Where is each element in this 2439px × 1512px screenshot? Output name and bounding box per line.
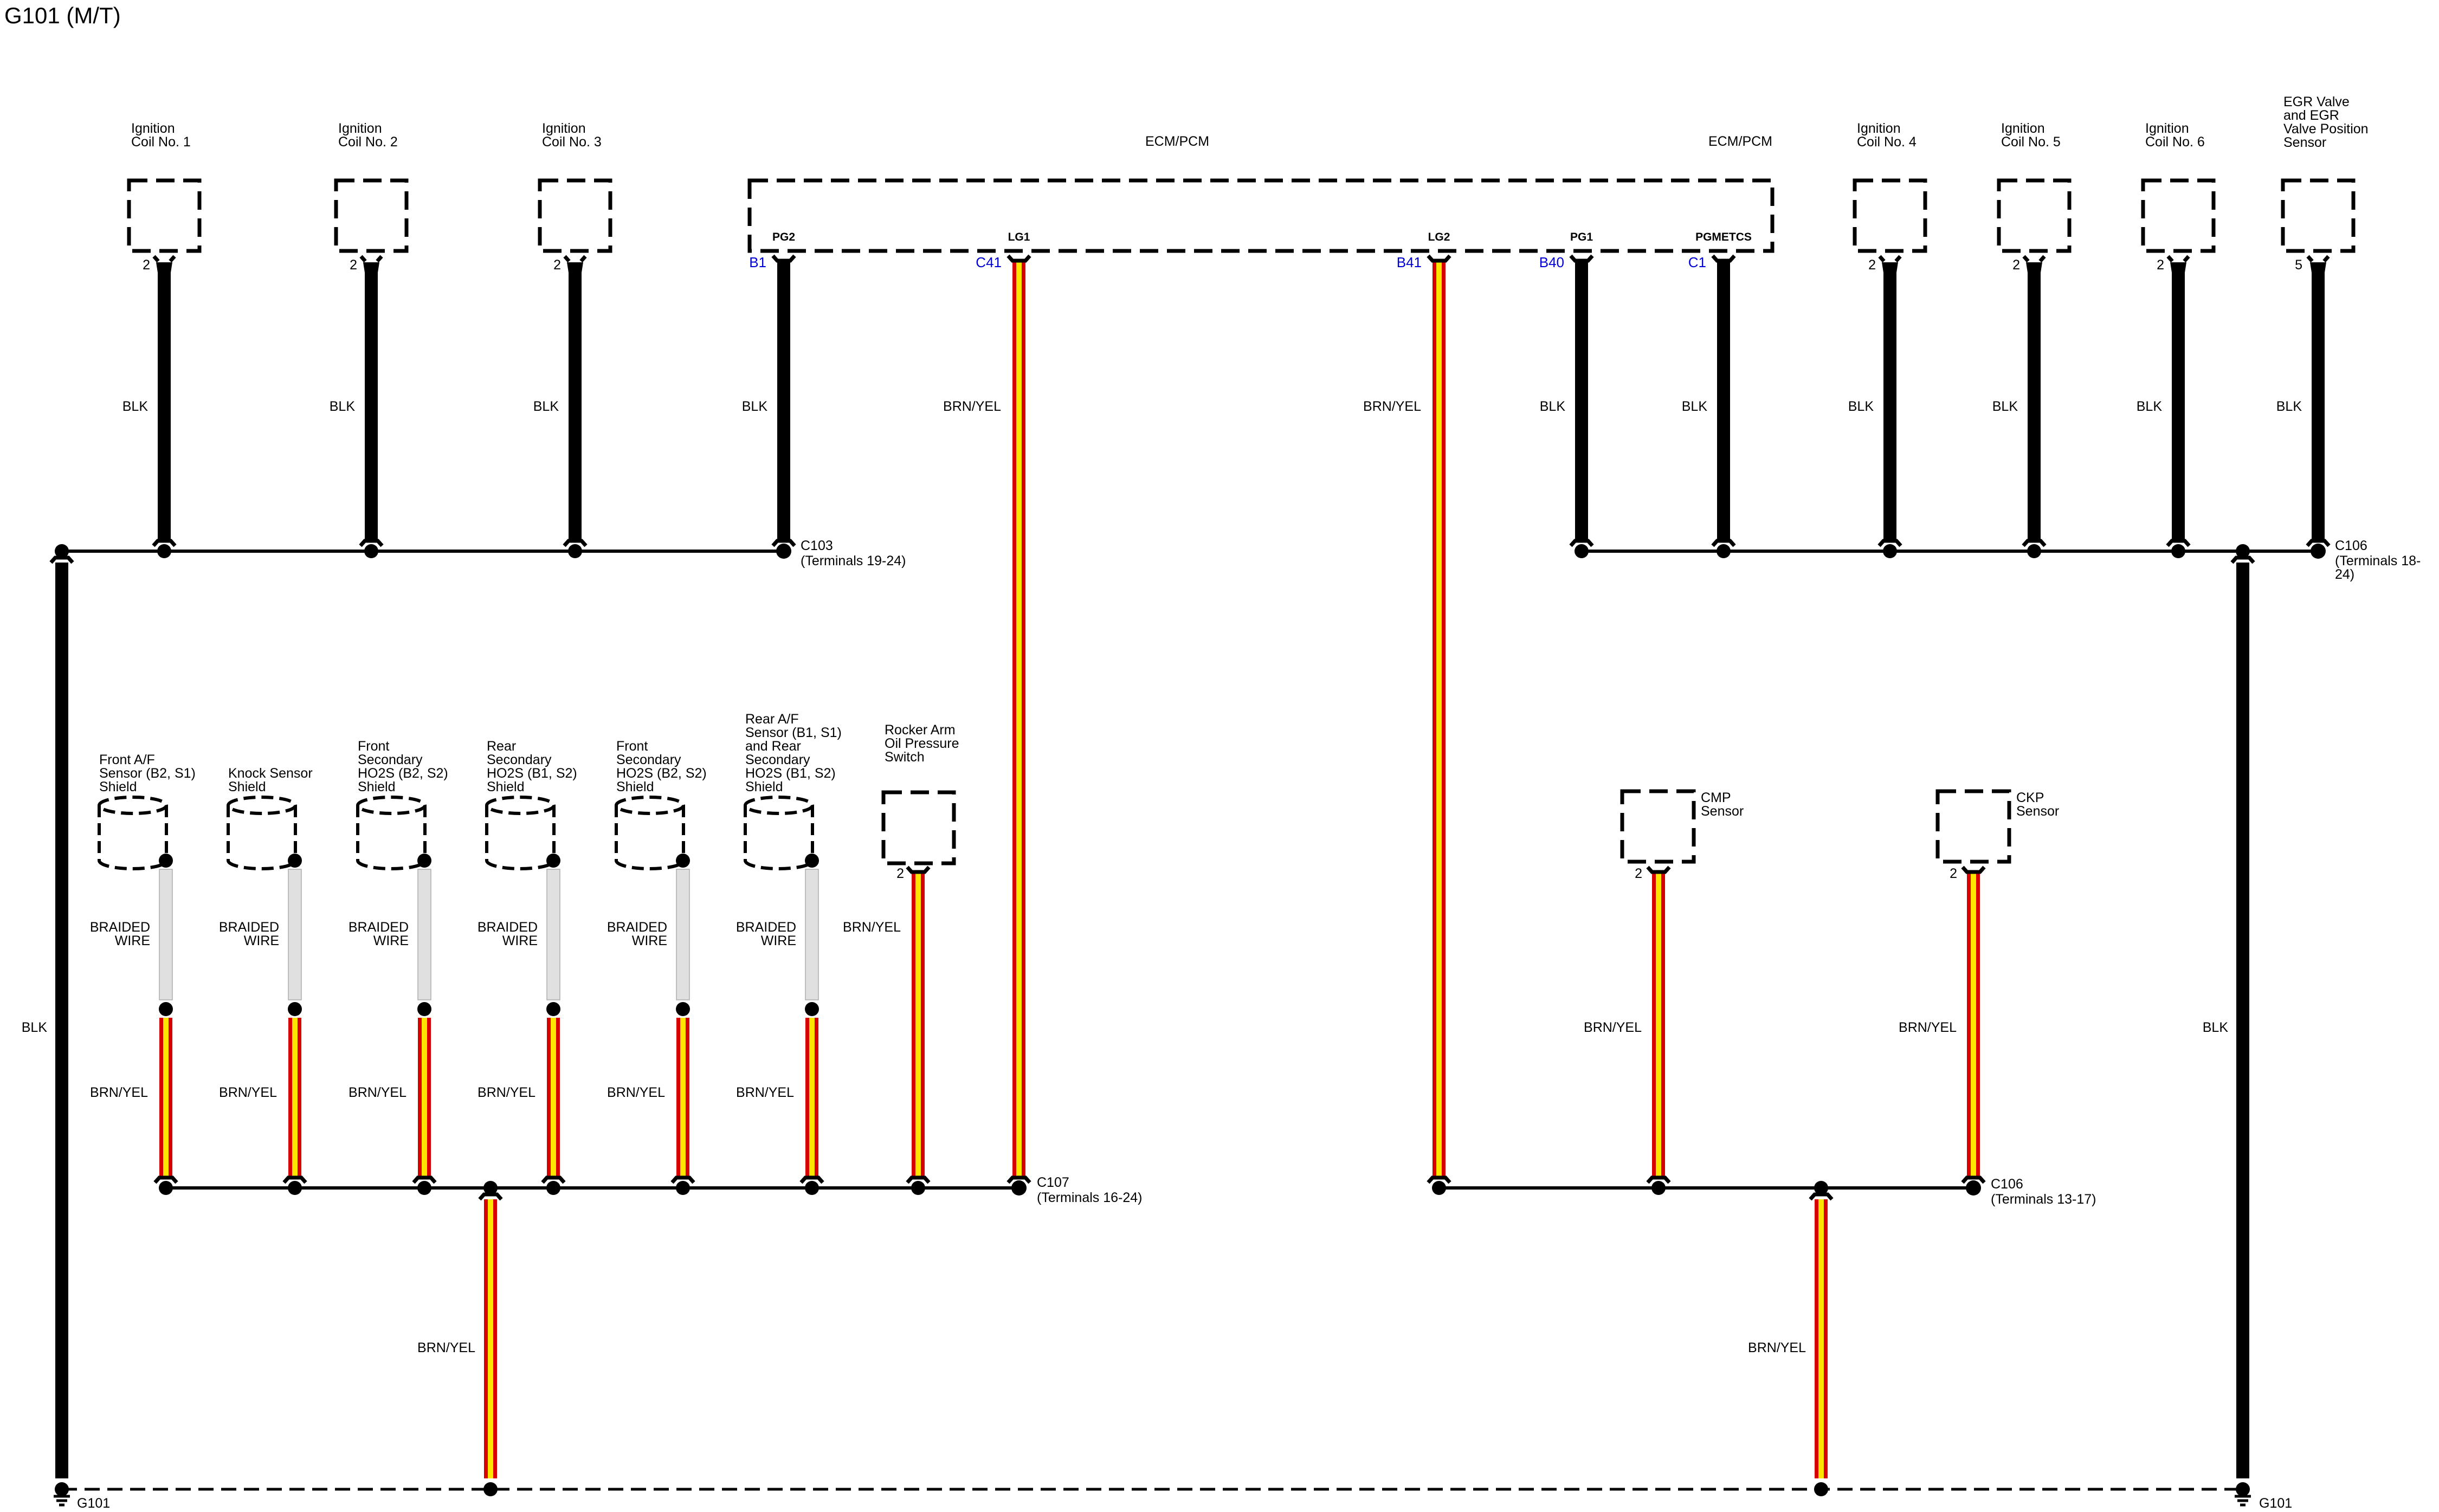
ecm-pin-pg1: PG1 [1549,231,1614,243]
connector-c106-bottom-terminals: (Terminals 13-17) [1991,1193,2096,1206]
coil6-pin-number: 2 [2143,259,2164,272]
ground-symbol-right-icon [2235,1496,2251,1505]
shield1-wire-color: BRN/YEL [78,1086,148,1100]
pgmetcs-blk-wire [1717,261,1730,539]
shield-4-label: Rear Secondary HO2S (B1, S2) Shield [487,740,577,794]
shield6-brnyel-wire [805,1018,818,1177]
shield2-wire-color: BRN/YEL [207,1086,277,1100]
egr-valve-label: EGR Valve and EGR Valve Position Sensor [2283,95,2369,150]
braided-wire-6 [805,869,818,1000]
lg1-brnyel-wire [1012,261,1025,1177]
coil1-plug-icon [154,256,175,273]
brnyel-wires [159,261,1980,1478]
ckp-sensor-label: CKP Sensor [2016,791,2059,818]
ignition-coil-4-label: Ignition Coil No. 4 [1857,122,1917,149]
ignition-coil-5-box [1999,180,2069,251]
ground-symbols [54,1496,2251,1505]
ecm-pcm-label-right: ECM/PCM [1669,135,1772,148]
coil4-pin-number: 2 [1854,259,1876,272]
cmp-sensor-box [1622,791,1694,862]
shield3-wire-color: BRN/YEL [336,1086,406,1100]
terminal-b1: B1 [696,255,766,269]
connector-c103-name: C103 [801,539,833,553]
shield1-brnyel-wire [159,1018,172,1177]
wiring-diagram-g101: G101 (M/T) Ignition Coil No. 1 Ignition … [0,0,2439,1512]
egr-wire-color: BLK [2264,400,2302,413]
coil2-wire-color: BLK [317,400,355,413]
coil5-wire-color: BLK [1980,400,2018,413]
coil3-plug-icon [565,256,585,273]
ckp-wire-color: BRN/YEL [1886,1021,1957,1035]
connector-c103-terminals: (Terminals 19-24) [801,554,906,568]
terminal-c41: C41 [931,255,1002,269]
coil4-wire-color: BLK [1836,400,1874,413]
braided-wire-2-label: BRAIDED WIRE [209,921,279,948]
coil6-wire-color: BLK [2124,400,2162,413]
ignition-coil-5-label: Ignition Coil No. 5 [2001,122,2061,149]
ecm-pin-pg2: PG2 [751,231,816,243]
left-drop-brnyel-wire [484,1199,497,1478]
coil5-pin-number: 2 [1998,259,2020,272]
braided-wire-1-label: BRAIDED WIRE [80,921,150,948]
ignition-coil-2-label: Ignition Coil No. 2 [338,122,398,149]
cmp-wire-color: BRN/YEL [1571,1021,1642,1035]
ckp-sensor-box [1938,791,2009,862]
pg2-blk-wire [777,261,790,539]
braided-wire-3 [418,869,431,1000]
braided-wire-1 [159,869,172,1000]
shield-cylinder-5 [616,797,683,869]
ground-label-right: G101 [2259,1497,2292,1510]
coil2-blk-wire [365,272,378,539]
shield-cylinder-6 [745,797,812,869]
shield-1-label: Front A/F Sensor (B2, S1) Shield [99,753,196,794]
braided-wire-4-label: BRAIDED WIRE [467,921,538,948]
ignition-coil-1-label: Ignition Coil No. 1 [131,122,191,149]
rocker-brnyel-wire [912,873,925,1177]
coil6-plug-icon [2168,256,2189,273]
component-boxes [129,180,2353,863]
shield5-brnyel-wire [676,1018,689,1177]
lg1-wire-color: BRN/YEL [931,400,1001,413]
shield6-wire-color: BRN/YEL [724,1086,794,1100]
egr-plug-icon [2308,256,2328,273]
lg2-brnyel-wire [1433,261,1446,1177]
pg1-wire-color: BLK [1527,400,1565,413]
rocker-wire-color: BRN/YEL [830,921,901,934]
coil5-plug-icon [2024,256,2044,273]
cmp-pin-number: 2 [1621,867,1642,881]
connector-c107-name: C107 [1037,1176,1069,1190]
coil3-wire-color: BLK [521,400,559,413]
connector-c106-bottom-name: C106 [1991,1178,2023,1191]
shield-cylinder-2 [228,797,295,869]
coil4-plug-icon [1880,256,1900,273]
cmp-sensor-label: CMP Sensor [1701,791,1744,818]
egr-valve-box [2283,180,2353,251]
shield-cylinder-3 [358,797,425,869]
coil1-wire-color: BLK [110,400,148,413]
coil2-pin-number: 2 [335,259,357,272]
egr-pin-number: 5 [2281,259,2302,272]
rocker-arm-label: Rocker Arm Oil Pressure Switch [885,723,959,764]
terminal-b40: B40 [1494,255,1564,269]
right-ground-blk-wire [2236,563,2249,1478]
coil5-blk-wire [2028,272,2041,539]
coil3-blk-wire [569,272,582,539]
coil2-plug-icon [361,256,382,273]
right-ground-wire-color: BLK [2190,1021,2228,1035]
right-drop-brnyel-wire [1815,1199,1828,1478]
shield-3-label: Front Secondary HO2S (B2, S2) Shield [358,740,448,794]
shield5-wire-color: BRN/YEL [595,1086,665,1100]
ecm-pin-pgmetcs: PGMETCS [1691,231,1756,243]
connector-c106-top-name: C106 [2335,539,2367,553]
shield4-wire-color: BRN/YEL [465,1086,535,1100]
terminal-c1: C1 [1636,255,1706,269]
shield-cylinder-4 [487,797,554,869]
rocker-pin-number: 2 [882,867,904,881]
pin-collars-up [773,256,1984,872]
lg2-wire-color: BRN/YEL [1351,400,1421,413]
ckp-pin-number: 2 [1935,867,1957,881]
shield3-brnyel-wire [418,1018,431,1177]
pg2-wire-color: BLK [730,400,767,413]
terminal-b41: B41 [1351,255,1422,269]
shield-cylinders [99,797,812,869]
braided-wire-4 [547,869,560,1000]
braided-wire-5 [676,869,689,1000]
rocker-arm-switch-box [883,792,954,863]
shield-2-label: Knock Sensor Shield [228,767,313,794]
connector-c106-top-terminals: (Terminals 18-24) [2335,554,2439,581]
shield-cylinder-1 [99,797,166,869]
ignition-coil-3-box [540,180,610,251]
ecm-pin-lg2: LG2 [1406,231,1472,243]
ignition-coil-6-label: Ignition Coil No. 6 [2145,122,2205,149]
ecm-pin-lg1: LG1 [986,231,1051,243]
junction-dots [55,544,2326,1496]
left-drop-wire-color: BRN/YEL [405,1341,475,1355]
ground-symbol-left-icon [54,1496,70,1505]
braided-wire-6-label: BRAIDED WIRE [726,921,796,948]
ground-label-left: G101 [77,1497,110,1510]
braided-wire-2 [288,869,301,1000]
braided-wire-5-label: BRAIDED WIRE [597,921,667,948]
connector-c107-terminals: (Terminals 16-24) [1037,1191,1143,1205]
ignition-coil-1-box [129,180,199,251]
coil6-blk-wire [2172,272,2185,539]
ignition-coil-3-label: Ignition Coil No. 3 [542,122,602,149]
coil1-blk-wire [158,272,171,539]
page-title: G101 (M/T) [4,3,121,28]
shield2-brnyel-wire [288,1018,301,1177]
ignition-coil-2-box [336,180,406,251]
left-ground-wire-color: BLK [9,1021,47,1035]
coil3-pin-number: 2 [539,259,561,272]
ecm-pcm-label-left: ECM/PCM [1145,135,1209,148]
shield4-brnyel-wire [547,1018,560,1177]
left-ground-blk-wire [55,563,68,1478]
braided-wire-3-label: BRAIDED WIRE [338,921,409,948]
pg1-blk-wire [1575,261,1588,539]
egr-blk-wire [2312,272,2325,539]
cmp-brnyel-wire [1652,873,1665,1177]
shield-6-label: Rear A/F Sensor (B1, S1) and Rear Second… [745,713,842,794]
coil4-blk-wire [1883,272,1896,539]
pgmetcs-wire-color: BLK [1669,400,1707,413]
right-drop-wire-color: BRN/YEL [1735,1341,1806,1355]
ignition-coil-4-box [1855,180,1925,251]
ignition-coil-6-box [2143,180,2214,251]
shield-5-label: Front Secondary HO2S (B2, S2) Shield [616,740,707,794]
coil1-pin-number: 2 [128,259,150,272]
ecm-pcm-box [750,180,1772,251]
ckp-brnyel-wire [1967,873,1980,1177]
